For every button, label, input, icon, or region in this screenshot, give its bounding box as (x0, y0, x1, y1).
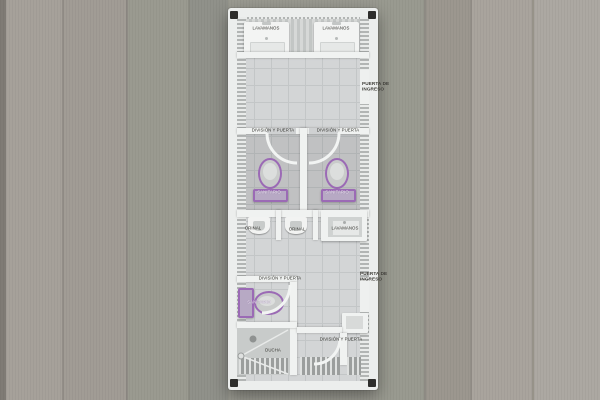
entrance-top-line2: INGRESO (362, 88, 389, 94)
label-sanitario-bottom: SANITARIO (247, 301, 271, 306)
label-lavamanos-mid: LAVAMANOS (332, 227, 359, 232)
label-lavamanos-right: LAVAMANOS (323, 27, 350, 32)
label-sanitario-right: SANITARIO (325, 191, 349, 196)
label-sanitario-left: SANITARIO (257, 191, 281, 196)
label-orinal-left: ORINAL (245, 227, 262, 232)
door-arcs-overlay (228, 8, 378, 390)
label-division-left: DIVISIÓN Y PUERTA (252, 129, 294, 134)
label-ducha: DUCHA (265, 349, 281, 354)
label-entrance-bottom: PUERTA DE INGRESO (360, 272, 387, 283)
label-division-right: DIVISIÓN Y PUERTA (317, 129, 359, 134)
container-floor-plan: LAVAMANOS LAVAMANOS DIVISIÓN Y PUERTA DI… (228, 8, 378, 390)
entrance-bottom-line2: INGRESO (360, 278, 387, 284)
scene-background: LAVAMANOS LAVAMANOS DIVISIÓN Y PUERTA DI… (0, 0, 600, 400)
label-division-toilet-room: DIVISIÓN Y PUERTA (259, 277, 301, 282)
label-orinal-right: ORINAL (289, 228, 306, 233)
label-division-bottom-stall: DIVISIÓN Y PUERTA (320, 338, 362, 343)
label-entrance-top: PUERTA DE INGRESO (362, 82, 389, 93)
label-lavamanos-left: LAVAMANOS (253, 27, 280, 32)
